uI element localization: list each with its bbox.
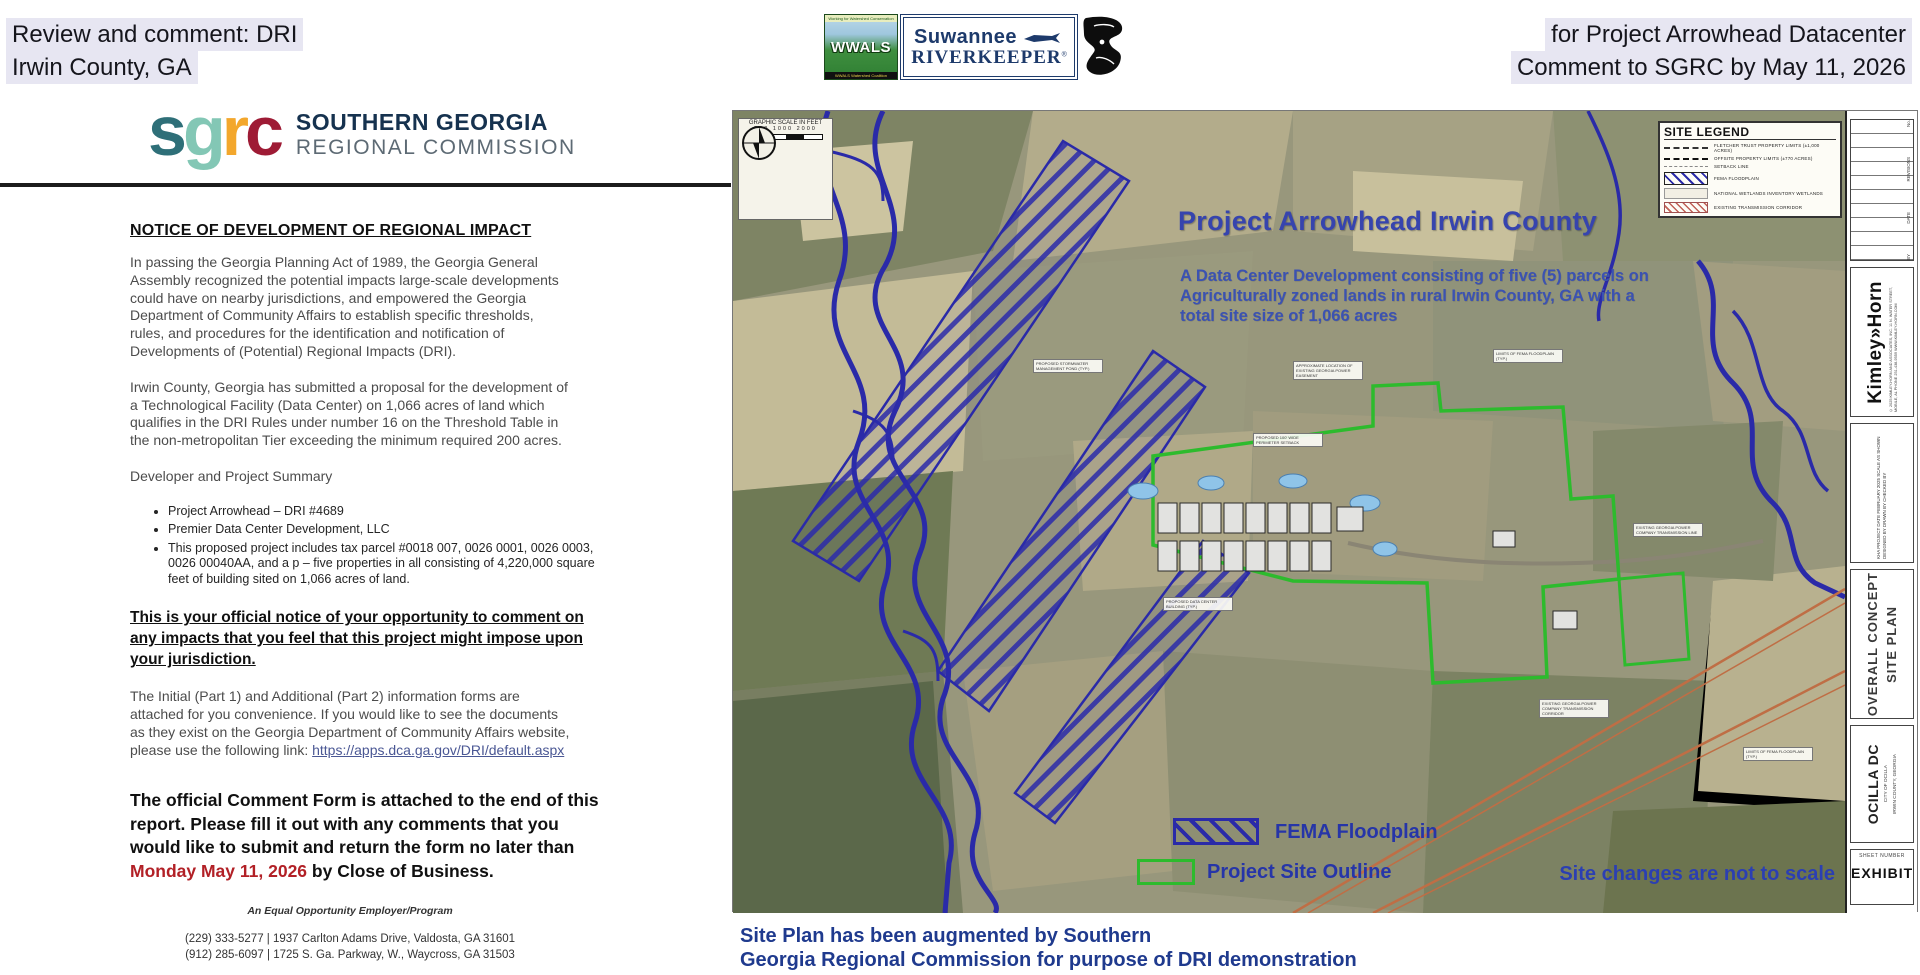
site-legend-item: FLETCHER TRUST PROPERTY LIMITS (±1,000 A… — [1714, 143, 1836, 153]
map-callout: EXISTING GEORGIA POWER COMPANY TRANSMISS… — [1633, 523, 1703, 537]
summary-heading: Developer and Project Summary — [130, 468, 570, 486]
project-fields-text: KHA PROJECT DATE FEBRUARY 2025 SCALE AS … — [1876, 427, 1888, 559]
wwals-footer-text: WWALS Watershed Coalition — [825, 72, 897, 79]
suwannee-riverkeeper-logo: Suwannee RIVERKEEPER® — [900, 14, 1078, 80]
sheet-title-block: OVERALL CONCEPT SITE PLAN — [1850, 569, 1914, 719]
revisions-table: No. REVISIONS DATE BY — [1850, 119, 1914, 261]
letterhead-divider — [0, 183, 731, 187]
notice-para2: Irwin County, Georgia has submitted a pr… — [130, 379, 570, 450]
revisions-label: REVISIONS — [1906, 157, 1911, 182]
aerial-map: GRAPHIC SCALE IN FEET 500 1000 2000 SITE… — [733, 111, 1845, 913]
header-right-line2: Comment to SGRC by May 11, 2026 — [1511, 51, 1912, 84]
header-left-line1: Review and comment: DRI — [6, 18, 303, 51]
map-callout: EXISTING GEORGIA POWER COMPANY TRANSMISS… — [1539, 699, 1609, 718]
bullet-item: Premier Data Center Development, LLC — [168, 522, 598, 538]
project-city: CITY OF OCILLA — [1884, 765, 1890, 802]
sturgeon-fish-icon — [1022, 31, 1064, 45]
header-left: Review and comment: DRI Irwin County, GA — [6, 18, 303, 84]
fema-floodplain-swatch — [1173, 818, 1259, 845]
kimley-horn-logo: Kimley»Horn — [1865, 281, 1887, 404]
site-legend-item: NATIONAL WETLANDS INVENTORY WETLANDS — [1714, 191, 1823, 196]
sheet-number-block: SHEET NUMBER EXHIBIT — [1850, 849, 1914, 905]
header-right-line1: for Project Arrowhead Datacenter — [1545, 18, 1912, 51]
header-left-line2: Irwin County, GA — [6, 51, 198, 84]
map-callout: PROPOSED STORMWATER MANAGEMENT POND (TYP… — [1033, 359, 1103, 373]
notice-document: NOTICE OF DEVELOPMENT OF REGIONAL IMPACT… — [130, 222, 650, 975]
header-right: for Project Arrowhead Datacenter Comment… — [1511, 18, 1912, 84]
north-scale-box: GRAPHIC SCALE IN FEET 500 1000 2000 — [738, 118, 833, 220]
bullet-item: This proposed project includes tax parce… — [168, 541, 598, 588]
sgrc-logo: sgrc SOUTHERN GEORGIA REGIONAL COMMISSIO… — [148, 100, 576, 162]
revisions-date-label: DATE — [1906, 212, 1911, 224]
summary-bullet-list: Project Arrowhead – DRI #4689 Premier Da… — [168, 504, 650, 588]
contact-line1: (229) 333-5277 | 1937 Carlton Adams Driv… — [130, 931, 570, 947]
site-legend-item: FEMA FLOODPLAIN — [1714, 176, 1759, 181]
contact-line2: (912) 285-6097 | 1725 S. Ga. Parkway, W.… — [130, 947, 570, 963]
alapaha-water-trail-logo — [1080, 14, 1126, 80]
titleblock-strip: No. REVISIONS DATE BY Kimley»Horn © 2025… — [1845, 111, 1917, 913]
sheet-title-line1: OVERALL CONCEPT — [1865, 572, 1880, 716]
map-subtitle: A Data Center Development consisting of … — [1180, 266, 1660, 326]
forms-paragraph: The Initial (Part 1) and Additional (Par… — [130, 688, 575, 759]
sgrc-org-line2: REGIONAL COMMISSION — [296, 136, 576, 160]
sheet-number-label: SHEET NUMBER — [1851, 853, 1913, 859]
comment-text-after: by Close of Business. — [307, 861, 494, 881]
comment-deadline-date: Monday May 11, 2026 — [130, 861, 307, 881]
wwals-logo: Working for Watershed Conservation WWALS… — [824, 14, 898, 80]
map-callout: LIMITS OF FEMA FLOODPLAIN (TYP.) — [1743, 747, 1813, 761]
site-legend-item: SETBACK LINE — [1714, 164, 1749, 169]
sgrc-wordmark: sgrc — [148, 100, 280, 162]
map-callout: APPROXIMATE LOCATION OF EXISTING GEORGIA… — [1293, 361, 1363, 380]
eoe-line: An Equal Opportunity Employer/Program — [130, 905, 570, 917]
registered-mark: ® — [1062, 52, 1067, 59]
notice-para1: In passing the Georgia Planning Act of 1… — [130, 254, 570, 361]
riverkeeper-line2: RIVERKEEPER — [911, 47, 1061, 68]
letter-footer: An Equal Opportunity Employer/Program (2… — [130, 905, 570, 975]
site-legend-title: SITE LEGEND — [1664, 125, 1836, 140]
wwals-name: WWALS — [825, 39, 897, 56]
sheet-title-line2: SITE PLAN — [1884, 606, 1899, 683]
site-legend-item: EXISTING TRANSMISSION CORRIDOR — [1714, 205, 1802, 210]
site-legend-box: SITE LEGEND FLETCHER TRUST PROPERTY LIMI… — [1658, 121, 1842, 218]
map-title: Project Arrowhead Irwin County — [1178, 206, 1597, 237]
map-caption: Site Plan has been augmented by Southern… — [740, 924, 1357, 972]
map-callout: PROPOSED DATA CENTER BUILDING (TYP.) — [1163, 597, 1233, 611]
project-site-outline-swatch — [1137, 859, 1195, 885]
map-caption-line2: Georgia Regional Commission for purpose … — [740, 948, 1357, 972]
official-notice-text: This is your official notice of your opp… — [130, 607, 585, 670]
revisions-no-label: No. — [1906, 120, 1911, 127]
comment-form-paragraph: The official Comment Form is attached to… — [130, 789, 600, 883]
site-legend-item: OFFSITE PROPERTY LIMITS (±770 ACRES) — [1714, 156, 1813, 161]
sgrc-org-line1: SOUTHERN GEORGIA — [296, 109, 576, 136]
sheet-number-value: EXHIBIT — [1851, 865, 1913, 881]
header-logos: Working for Watershed Conservation WWALS… — [824, 14, 1126, 80]
riverkeeper-line1: Suwannee — [914, 26, 1017, 49]
map-callout: PROPOSED 100' WIDE PERIMETER SETBACK — [1253, 433, 1323, 447]
wwals-banner-text: Working for Watershed Conservation — [825, 15, 897, 22]
page: Review and comment: DRI Irwin County, GA… — [0, 0, 1920, 975]
map-callout: LIMITS OF FEMA FLOODPLAIN (TYP.) — [1493, 349, 1563, 363]
kimley-horn-address: © 2025 KIMLEY-HORN AND ASSOCIATES, INC. … — [1889, 272, 1899, 412]
project-county: IRWIN COUNTY, GEORGIA — [1893, 754, 1899, 814]
dca-dri-link[interactable]: https://apps.dca.ga.gov/DRI/default.aspx — [312, 742, 564, 758]
site-plan-sheet: GRAPHIC SCALE IN FEET 500 1000 2000 SITE… — [732, 110, 1918, 912]
fema-floodplain-label: FEMA Floodplain — [1275, 821, 1438, 844]
notice-heading: NOTICE OF DEVELOPMENT OF REGIONAL IMPACT — [130, 222, 650, 240]
project-site-outline-label: Project Site Outline — [1207, 861, 1391, 884]
engineer-logo-block: Kimley»Horn © 2025 KIMLEY-HORN AND ASSOC… — [1850, 267, 1914, 417]
project-name: OCILLA DC — [1865, 744, 1881, 824]
project-fields-block: KHA PROJECT DATE FEBRUARY 2025 SCALE AS … — [1850, 423, 1914, 563]
bullet-item: Project Arrowhead – DRI #4689 — [168, 504, 598, 520]
comment-text-before: The official Comment Form is attached to… — [130, 790, 599, 857]
not-to-scale-note: Site changes are not to scale — [1463, 863, 1835, 886]
map-caption-line1: Site Plan has been augmented by Southern — [740, 924, 1357, 948]
project-name-block: OCILLA DC CITY OF OCILLA IRWIN COUNTY, G… — [1850, 725, 1914, 843]
north-arrow-icon — [739, 123, 779, 163]
revisions-by-label: BY — [1906, 254, 1911, 260]
